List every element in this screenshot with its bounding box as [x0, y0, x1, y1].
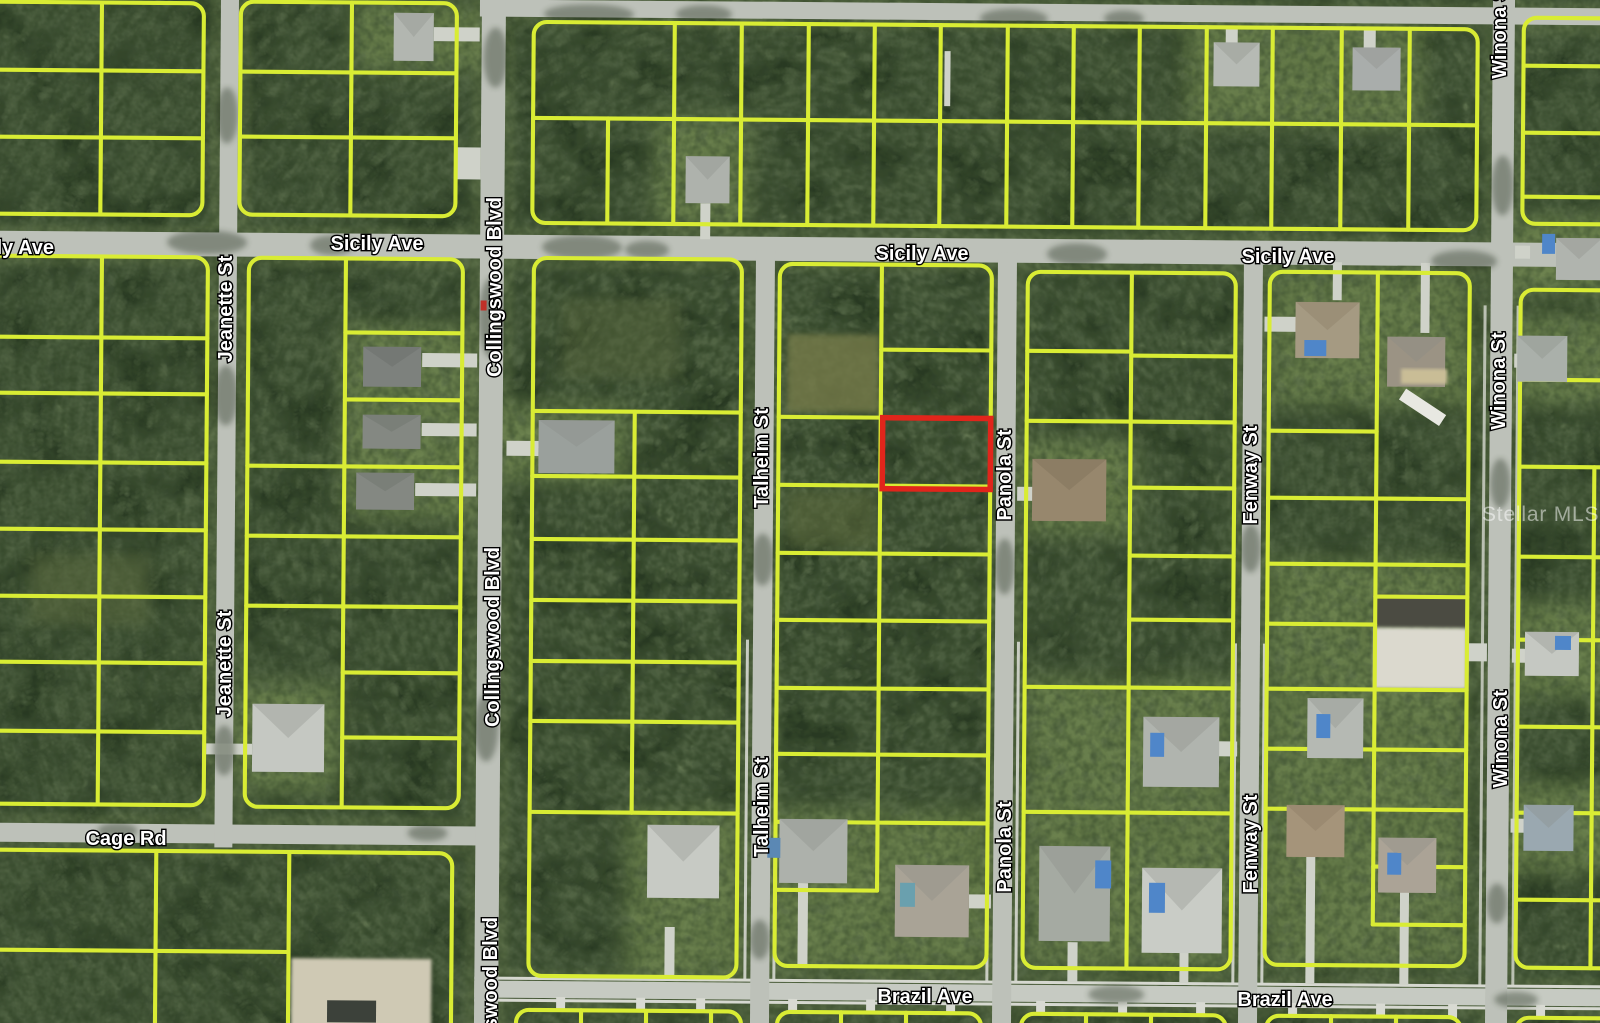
- svg-text:Winona St: Winona St: [1490, 690, 1512, 788]
- svg-text:Fenway St: Fenway St: [1240, 794, 1262, 893]
- svg-text:Collingswood Blvd: Collingswood Blvd: [480, 917, 502, 1023]
- svg-text:Panola St: Panola St: [994, 801, 1016, 892]
- svg-text:Jeanette St: Jeanette St: [215, 255, 237, 362]
- svg-text:Stellar MLS: Stellar MLS: [1482, 503, 1599, 526]
- svg-text:Winona St: Winona St: [1489, 0, 1511, 79]
- svg-text:Winona St: Winona St: [1488, 332, 1510, 430]
- svg-text:Sicily Ave: Sicily Ave: [0, 237, 54, 259]
- svg-text:Sicily Ave: Sicily Ave: [330, 233, 423, 255]
- svg-text:Sicily Ave: Sicily Ave: [875, 243, 968, 265]
- svg-text:Talheim St: Talheim St: [751, 408, 773, 508]
- svg-text:Sicily Ave: Sicily Ave: [1241, 246, 1334, 268]
- svg-text:Cage Rd: Cage Rd: [85, 828, 166, 850]
- svg-text:Jeanette St: Jeanette St: [214, 610, 236, 717]
- svg-text:Panola St: Panola St: [994, 429, 1016, 520]
- svg-text:Collingswood Blvd: Collingswood Blvd: [482, 547, 504, 727]
- svg-text:Talheim St: Talheim St: [751, 757, 773, 857]
- svg-text:Brazil Ave: Brazil Ave: [1237, 989, 1332, 1011]
- svg-text:Brazil Ave: Brazil Ave: [877, 986, 972, 1008]
- svg-text:Fenway St: Fenway St: [1240, 425, 1262, 524]
- svg-text:Collingswood Blvd: Collingswood Blvd: [484, 197, 506, 377]
